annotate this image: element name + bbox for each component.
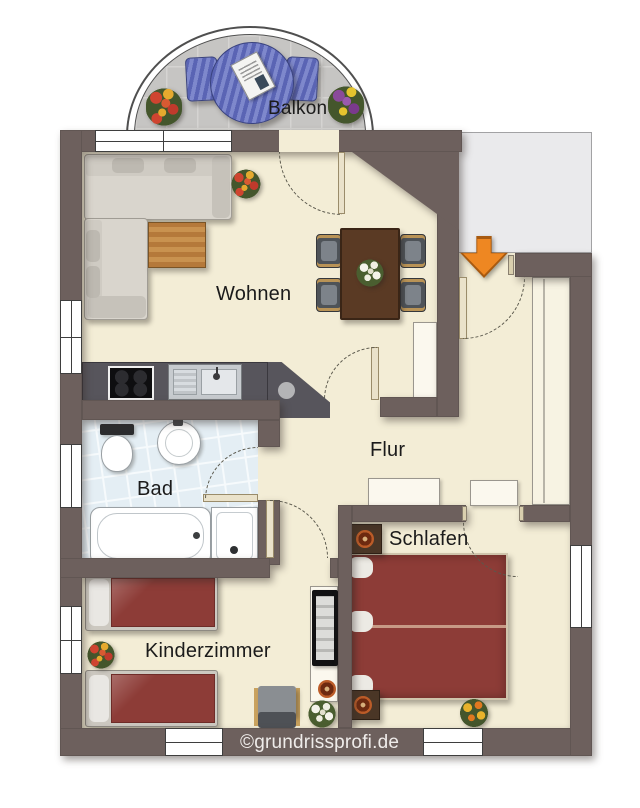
door-frame-post <box>519 506 524 521</box>
balcony-door-opening <box>279 130 339 152</box>
window <box>60 300 82 374</box>
window <box>570 545 592 628</box>
wall-segment <box>60 558 270 578</box>
wall-segment <box>520 505 570 522</box>
window <box>95 130 232 152</box>
wall-segment <box>515 253 592 277</box>
wall-segment <box>330 558 338 578</box>
wall-segment <box>352 505 466 522</box>
room-label-bad: Bad <box>137 478 173 501</box>
wall-segment <box>82 400 280 420</box>
room-label-flur: Flur <box>370 439 405 462</box>
door-frame-post <box>462 506 467 521</box>
wall-segment <box>570 253 592 756</box>
wall-segment <box>380 397 437 417</box>
floor-plan: Balkon Wohnen Flur Bad Schlafen Kinderzi… <box>0 0 640 808</box>
room-label-kinderzimmer: Kinderzimmer <box>145 640 271 663</box>
wall-segment <box>338 505 352 728</box>
wall-diagonal <box>352 152 459 230</box>
window <box>423 728 483 756</box>
room-label-schlafen: Schlafen <box>389 528 468 551</box>
window <box>60 444 82 508</box>
wall-segment <box>258 420 280 447</box>
room-label-balkon: Balkon <box>268 98 327 120</box>
room-label-wohnen: Wohnen <box>216 283 291 306</box>
entrance-arrow-icon <box>460 236 508 278</box>
watermark: ©grundrissprofi.de <box>240 732 399 754</box>
walls <box>0 0 640 808</box>
door-frame-post <box>508 255 514 275</box>
window <box>165 728 223 756</box>
window <box>60 606 82 674</box>
